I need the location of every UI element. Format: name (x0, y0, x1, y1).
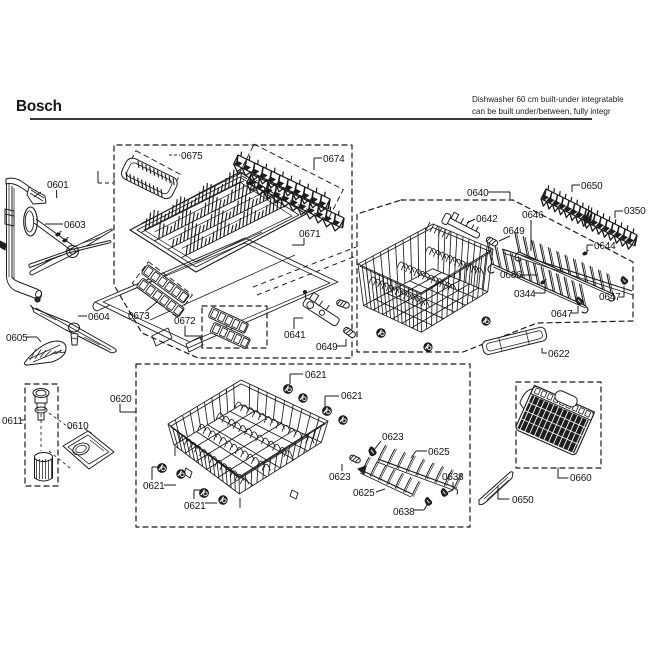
svg-text:0625: 0625 (353, 488, 375, 499)
svg-text:0642: 0642 (476, 214, 498, 225)
svg-text:0623: 0623 (382, 432, 404, 443)
svg-text:0640: 0640 (467, 188, 489, 199)
svg-text:0621: 0621 (184, 501, 206, 512)
svg-text:0625: 0625 (428, 447, 450, 458)
svg-text:Dishwasher 60 cm built-under i: Dishwasher 60 cm built-under integratabl… (472, 95, 624, 104)
svg-text:0638: 0638 (442, 472, 464, 483)
svg-text:0350: 0350 (624, 206, 646, 217)
svg-text:0610: 0610 (67, 421, 89, 432)
svg-text:0647: 0647 (599, 292, 621, 303)
svg-text:0344: 0344 (514, 289, 536, 300)
svg-text:Bosch: Bosch (16, 98, 62, 115)
svg-text:0686: 0686 (500, 270, 522, 281)
svg-text:0646: 0646 (522, 210, 544, 221)
svg-text:0672: 0672 (174, 316, 196, 327)
svg-text:0623: 0623 (329, 472, 351, 483)
svg-text:0650: 0650 (581, 181, 603, 192)
svg-text:0611: 0611 (2, 416, 23, 427)
svg-text:0675: 0675 (181, 151, 203, 162)
svg-text:0621: 0621 (305, 370, 327, 381)
svg-text:0604: 0604 (88, 312, 110, 323)
svg-text:0622: 0622 (548, 349, 570, 360)
svg-text:0620: 0620 (110, 394, 132, 405)
svg-text:0671: 0671 (299, 229, 321, 240)
svg-text:0621: 0621 (341, 391, 363, 402)
svg-text:0621: 0621 (143, 481, 165, 492)
svg-text:0605: 0605 (6, 333, 28, 344)
svg-text:0601: 0601 (47, 180, 69, 191)
svg-text:0603: 0603 (64, 220, 86, 231)
svg-text:0641: 0641 (284, 330, 306, 341)
svg-text:0649: 0649 (503, 226, 525, 237)
svg-text:0647: 0647 (551, 309, 573, 320)
svg-text:0673: 0673 (128, 311, 150, 322)
svg-text:0660: 0660 (570, 473, 592, 484)
svg-text:0649: 0649 (316, 342, 338, 353)
svg-text:0644: 0644 (594, 241, 616, 252)
svg-text:can be built under/between, fu: can be built under/between, fully integr (472, 107, 611, 116)
svg-text:0638: 0638 (393, 507, 415, 518)
svg-text:0650: 0650 (512, 495, 534, 506)
svg-text:0674: 0674 (323, 154, 345, 165)
